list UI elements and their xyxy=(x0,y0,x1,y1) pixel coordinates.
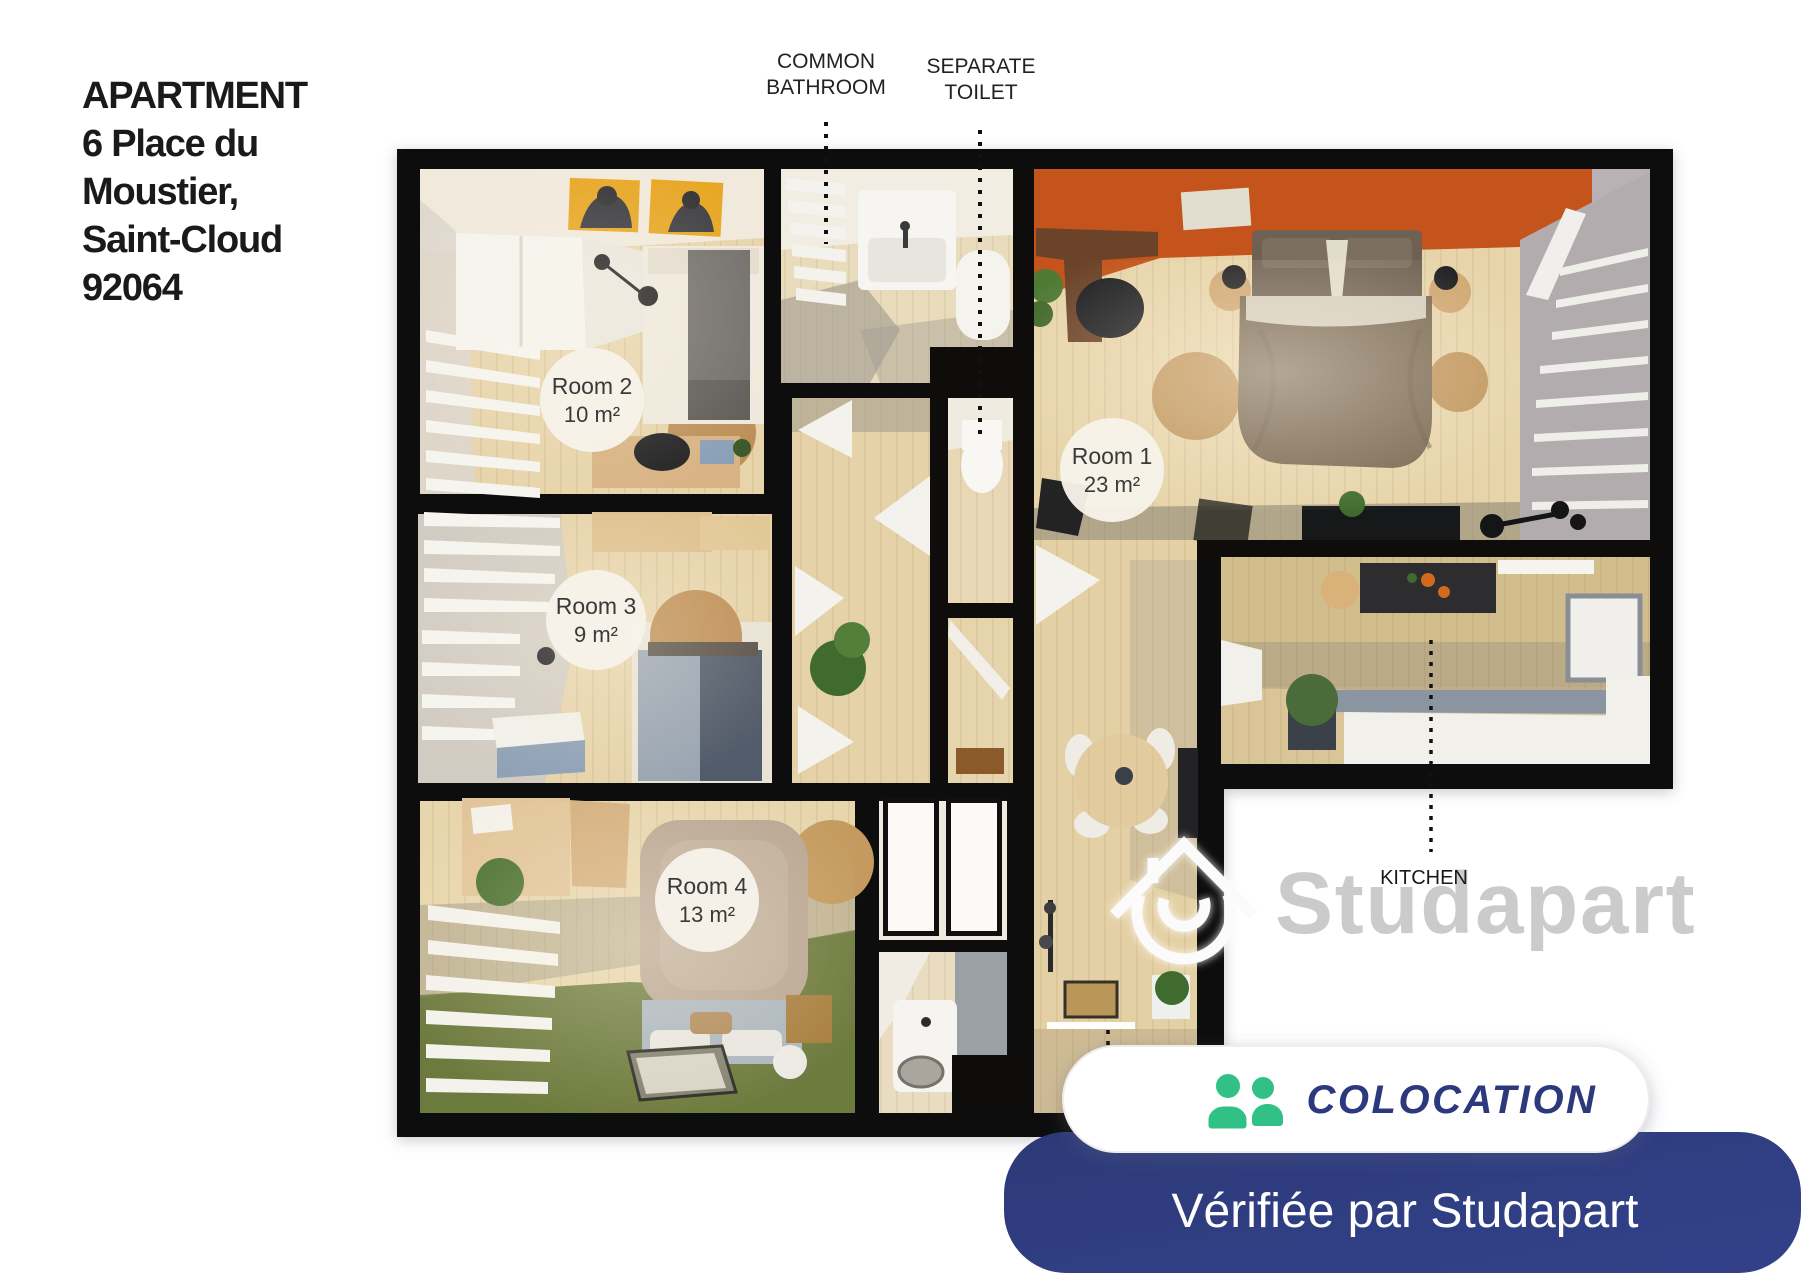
svg-text:BATHROOM: BATHROOM xyxy=(766,76,886,99)
svg-text:Room 4: Room 4 xyxy=(667,873,748,899)
svg-text:COMMON: COMMON xyxy=(777,50,875,73)
svg-text:SEPARATE: SEPARATE xyxy=(927,55,1036,78)
svg-text:Studapart: Studapart xyxy=(1275,855,1696,952)
svg-text:TOILET: TOILET xyxy=(944,81,1017,104)
svg-text:APARTMENT: APARTMENT xyxy=(82,75,308,117)
svg-text:Saint-Cloud: Saint-Cloud xyxy=(82,219,282,261)
svg-text:Room 2: Room 2 xyxy=(552,373,633,399)
svg-text:10 m²: 10 m² xyxy=(564,402,620,427)
svg-text:9 m²: 9 m² xyxy=(574,622,618,647)
svg-text:Room 3: Room 3 xyxy=(556,593,637,619)
svg-text:Vérifiée par Studapart: Vérifiée par Studapart xyxy=(1172,1185,1639,1238)
svg-text:Room 1: Room 1 xyxy=(1072,443,1153,469)
svg-text:92064: 92064 xyxy=(82,267,183,309)
svg-text:COLOCATION: COLOCATION xyxy=(1307,1078,1598,1122)
svg-text:Moustier,: Moustier, xyxy=(82,171,238,213)
svg-text:13 m²: 13 m² xyxy=(679,902,735,927)
svg-text:KITCHEN: KITCHEN xyxy=(1380,867,1468,889)
svg-text:23 m²: 23 m² xyxy=(1084,472,1140,497)
svg-text:6 Place du: 6 Place du xyxy=(82,123,258,165)
